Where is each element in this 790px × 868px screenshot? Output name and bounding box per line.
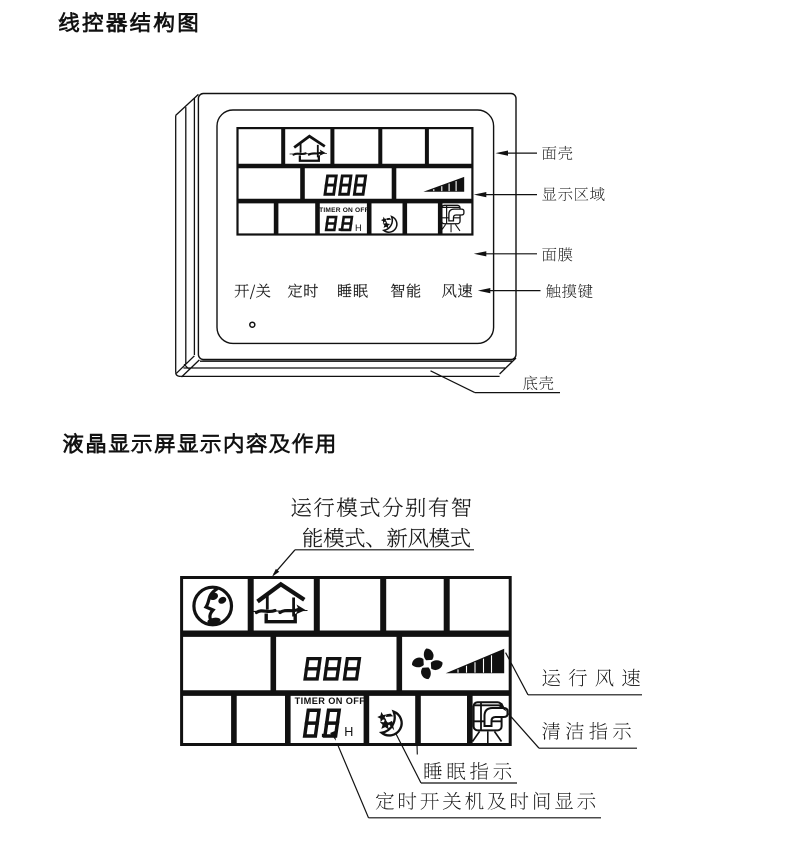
svg-text:H: H <box>344 725 353 739</box>
svg-text:TIMER ON OFF: TIMER ON OFF <box>319 207 369 214</box>
svg-text:H: H <box>355 223 362 233</box>
svg-text:TIMER ON OFF: TIMER ON OFF <box>295 696 366 706</box>
